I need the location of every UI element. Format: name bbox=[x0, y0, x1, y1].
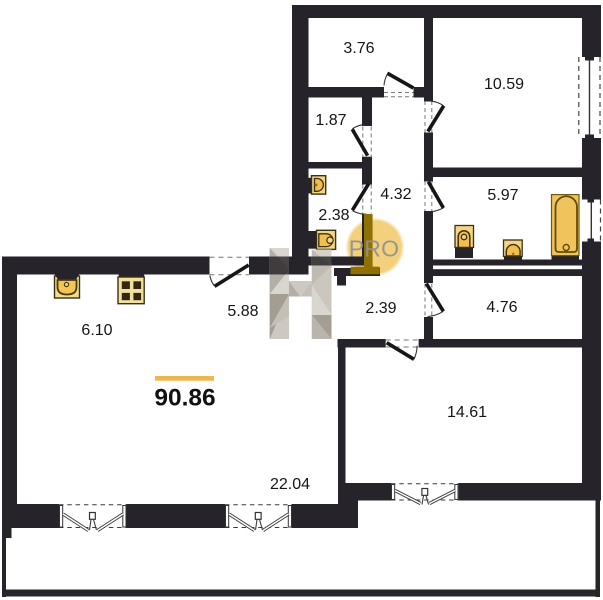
svg-text:90.86: 90.86 bbox=[154, 385, 215, 412]
svg-text:5.97: 5.97 bbox=[487, 187, 518, 204]
svg-text:4.76: 4.76 bbox=[486, 299, 517, 316]
svg-text:2.38: 2.38 bbox=[318, 207, 349, 224]
svg-text:PRO: PRO bbox=[349, 236, 399, 262]
svg-text:5.88: 5.88 bbox=[227, 303, 258, 320]
svg-text:6.10: 6.10 bbox=[81, 322, 112, 339]
svg-text:14.61: 14.61 bbox=[447, 404, 487, 421]
svg-text:2.39: 2.39 bbox=[365, 300, 396, 317]
svg-text:1.87: 1.87 bbox=[315, 112, 346, 129]
svg-text:10.59: 10.59 bbox=[484, 76, 524, 93]
svg-text:3.76: 3.76 bbox=[343, 40, 374, 57]
svg-text:4.32: 4.32 bbox=[380, 186, 411, 203]
svg-text:22.04: 22.04 bbox=[270, 476, 310, 493]
